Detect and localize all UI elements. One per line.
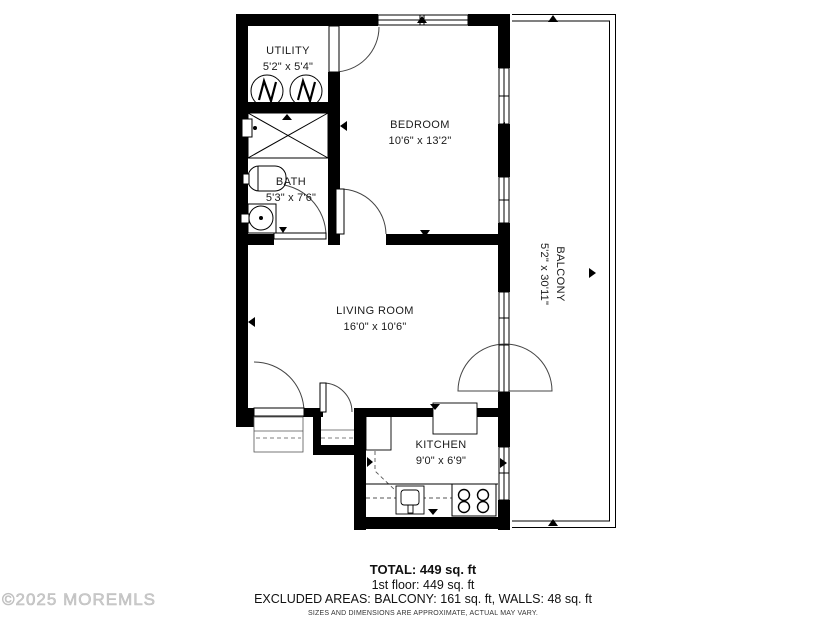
- entry-stoop: [254, 417, 303, 452]
- door-leaf-entry: [254, 408, 304, 416]
- summary-floor: 1st floor: 449 sq. ft: [372, 578, 475, 592]
- room-name: LIVING ROOM: [336, 303, 414, 319]
- room-name: UTILITY: [263, 43, 313, 59]
- room-label-living-room: LIVING ROOM 16'0" x 10'6": [336, 303, 414, 335]
- kitchen-entry-counter: [433, 403, 477, 434]
- balcony-door-panel: [499, 345, 509, 392]
- floorplan-canvas: UTILITY 5'2" x 5'4" BATH 5'3" x 7'6" BED…: [0, 0, 840, 630]
- wall-right-3: [498, 223, 510, 292]
- door-arc-bedroom: [340, 189, 386, 234]
- wall-right-2: [498, 124, 510, 177]
- wall-top-left: [236, 14, 378, 26]
- room-name: BEDROOM: [389, 117, 452, 133]
- wall-kitchen-left: [354, 408, 366, 530]
- room-dims: 9'0" x 6'9": [415, 453, 466, 469]
- walls: [236, 14, 510, 530]
- wall-left-corner: [248, 408, 254, 427]
- stove: [452, 484, 496, 516]
- door-arc-utility: [334, 27, 379, 72]
- door-arc-closet: [323, 383, 352, 412]
- room-label-bath: BATH 5'3" x 7'6": [266, 174, 316, 206]
- room-name: KITCHEN: [415, 437, 466, 453]
- marker-balcony-top: [548, 15, 558, 22]
- marker-bath-door: [279, 227, 287, 233]
- door-leaf-bath: [274, 233, 326, 239]
- room-dims: 5'3" x 7'6": [266, 190, 316, 206]
- window-living-right: [499, 292, 509, 345]
- marker-utility-bottom: [282, 114, 292, 120]
- marker-utility-right: [340, 121, 347, 131]
- wall-closet-bottom: [313, 445, 354, 455]
- room-label-balcony: BALCONY 5'2" x 30'11": [536, 243, 568, 305]
- door-arc-entry: [254, 362, 304, 412]
- room-label-utility: UTILITY 5'2" x 5'4": [263, 43, 313, 75]
- marker-living-left: [248, 317, 255, 327]
- marker-balcony-right: [589, 268, 596, 278]
- door-leaf-utility: [329, 26, 339, 72]
- room-dims: 5'2" x 5'4": [263, 59, 313, 75]
- room-dims: 10'6" x 13'2": [389, 133, 452, 149]
- room-dims: 5'2" x 30'11": [536, 243, 552, 305]
- room-name: BALCONY: [552, 243, 568, 305]
- summary-excluded: EXCLUDED AREAS: BALCONY: 161 sq. ft, WAL…: [254, 592, 592, 606]
- room-dims: 16'0" x 10'6": [336, 319, 414, 335]
- wall-bath-bottom: [248, 234, 274, 245]
- door-leaf-bedroom: [336, 189, 344, 234]
- wall-kitchen-top-a: [366, 408, 433, 417]
- wall-right-1: [498, 14, 510, 68]
- wall-kitchen-top-b: [477, 408, 510, 417]
- marker-kitchen-left: [367, 457, 373, 467]
- wall-kitchen-bottom: [354, 517, 510, 529]
- room-name: BATH: [266, 174, 316, 190]
- window-bedroom-right-2: [499, 177, 509, 223]
- wall-right-4: [498, 392, 510, 447]
- kitchen-sink: [396, 486, 424, 514]
- floorplan-drawing: [0, 0, 840, 630]
- window-kitchen-right: [499, 447, 509, 500]
- room-label-kitchen: KITCHEN 9'0" x 6'9": [415, 437, 466, 469]
- window-bedroom-right-1: [499, 68, 509, 124]
- summary-total: TOTAL: 449 sq. ft: [370, 562, 476, 577]
- closet-shelf: [321, 430, 354, 438]
- marker-kitchen-bottom: [428, 509, 438, 515]
- summary-disclaimer: SIZES AND DIMENSIONS ARE APPROXIMATE, AC…: [308, 610, 538, 617]
- refrigerator: [366, 414, 391, 450]
- watermark: ©2025 MOREMLS: [2, 590, 156, 610]
- counter-dashed-edge: [375, 451, 397, 492]
- wall-bedroom-living-divider: [386, 234, 510, 245]
- door-leaf-closet: [320, 383, 326, 412]
- marker-balcony-bottom: [548, 519, 558, 526]
- room-label-bedroom: BEDROOM 10'6" x 13'2": [389, 117, 452, 149]
